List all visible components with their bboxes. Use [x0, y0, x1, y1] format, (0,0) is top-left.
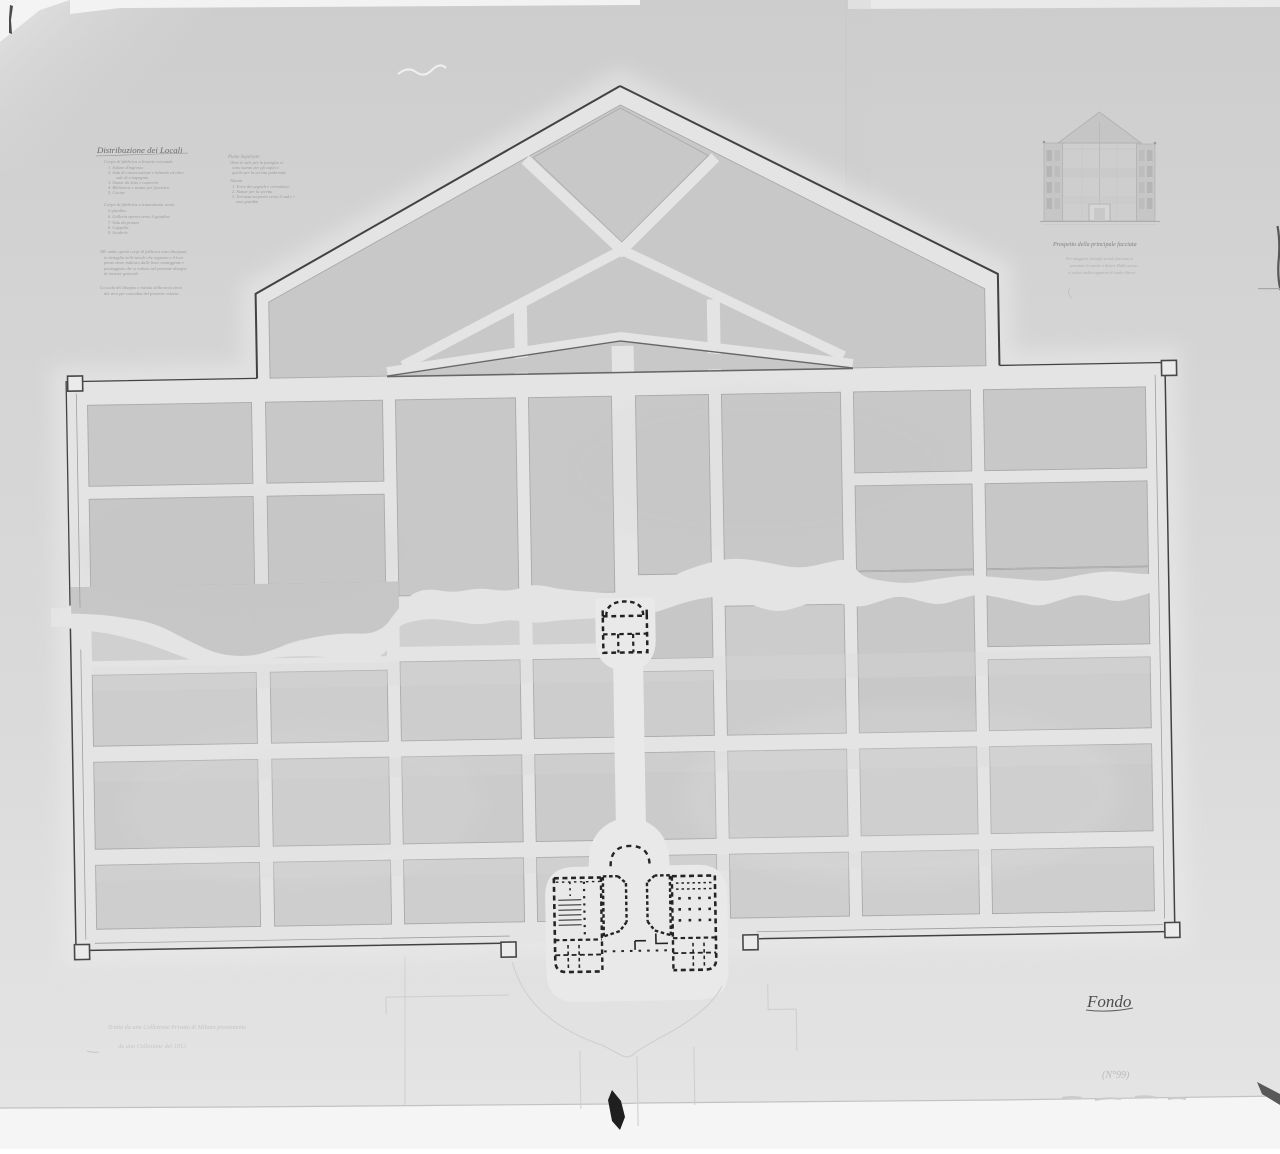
svg-text:suoi giardini: suoi giardini [236, 199, 259, 204]
svg-text:Altana: Altana [229, 178, 243, 183]
svg-text:6. Galleria aperta verso il gi: 6. Galleria aperta verso il giardino [108, 214, 171, 219]
svg-text:Tratto da una Collezione Priva: Tratto da una Collezione Privata di Mila… [108, 1024, 246, 1031]
svg-text:5. Cucine: 5. Cucine [108, 190, 125, 195]
svg-text:Fondo: Fondo [1086, 992, 1131, 1011]
svg-text:(N°99): (N°99) [1102, 1070, 1130, 1081]
svg-text:piano viene indicato dalle lin: piano viene indicato dalle linee tratteg… [103, 260, 184, 265]
svg-text:potranno le tavole a dietro. D: potranno le tavole a dietro. Dallo stess… [1069, 263, 1137, 268]
svg-text:da una Collezione del 1812: da una Collezione del 1812 [118, 1043, 186, 1050]
svg-text:9. Scuderie: 9. Scuderie [108, 230, 128, 235]
svg-text:il giardino: il giardino [108, 208, 127, 213]
svg-text:Per maggiori dettagli su tale: Per maggiori dettagli su tale facciata s… [1065, 256, 1134, 261]
svg-text:NB. ambo questi corpi di fabbr: NB. ambo questi corpi di fabbrica sono d… [99, 249, 187, 254]
svg-text:del vero per comodita del pres: del vero per comodita del presente volum… [104, 291, 179, 296]
svg-text:Corpo di fabbrica a tramontana: Corpo di fabbrica a tramontana verso [104, 202, 175, 207]
svg-text:di insieme generale: di insieme generale [104, 271, 138, 276]
svg-text:Corpo di fabbrica a levante en: Corpo di fabbrica a levante entrando [104, 159, 173, 164]
svg-text:La scala del disegno e ridotta: La scala del disegno e ridotta della met… [99, 285, 183, 290]
svg-text:quelle per la servitu padronal: quelle per la servitu padronale [232, 170, 286, 175]
svg-text:Prospetto della principale fac: Prospetto della principale facciata [1052, 241, 1137, 248]
svg-text:si vedra inoltre apparire il t: si vedra inoltre apparire il totale rili… [1068, 270, 1135, 275]
